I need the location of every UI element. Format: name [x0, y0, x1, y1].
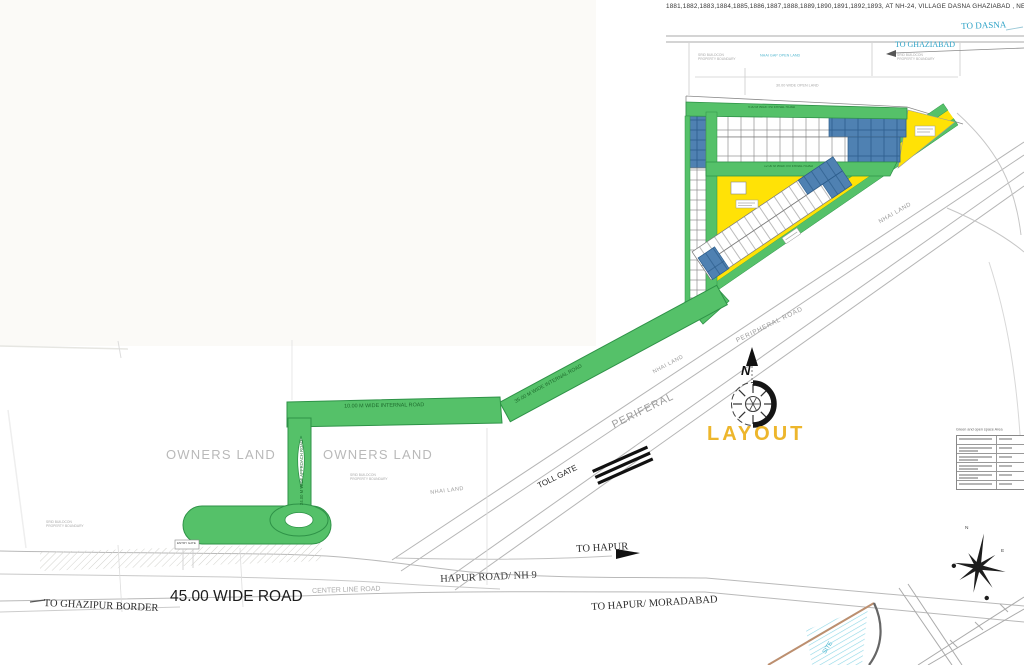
top-internal-road: [686, 102, 907, 119]
table-row: [957, 453, 1024, 462]
drawing-title: 1881,1882,1883,1884,1885,1886,1887,1888,…: [666, 3, 1024, 10]
internal-road-9-label: 9.00 M WIDE INTERNAL ROAD: [748, 106, 795, 109]
table-row: [957, 480, 1024, 489]
owners-land-label-2: OWNERS LAND: [323, 447, 433, 462]
wide-road-45-label: 45.00 WIDE ROAD: [170, 588, 303, 606]
star-compass: [947, 529, 1012, 603]
open-land-30-label: 30.00 WIDE OPEN LAND: [776, 84, 819, 88]
table-row: [957, 436, 1024, 444]
site-plan-canvas: [0, 0, 1024, 665]
owners-land-label-1: OWNERS LAND: [166, 447, 276, 462]
north-label: N: [741, 363, 750, 378]
table-row: [957, 471, 1024, 480]
area-statement-title: Green and open space Area: [956, 428, 999, 432]
to-dasna-label: TO DASNA: [961, 19, 1006, 31]
entry-gate-label: ENTRY GATE: [177, 542, 196, 545]
table-row: [957, 444, 1024, 453]
table-row: [957, 462, 1024, 471]
compass-rose: [732, 383, 775, 426]
star-compass-east-label: E: [1001, 549, 1004, 554]
layout-stamp: LAYOUT: [707, 423, 805, 446]
internal-road-12-label: 12.00 M WIDE INTERNAL ROAD: [764, 165, 813, 168]
internal-road-10: [287, 397, 502, 427]
toll-gate-bars: [592, 446, 653, 485]
star-compass-north-label: N: [965, 526, 968, 531]
property-boundary-note-top-left: SRID BUILDCONPROPERTY BOUNDARY: [698, 53, 736, 62]
approach-road-24-label: 24.00 M WIDE APPROACH ROAD: [300, 440, 304, 505]
to-ghaziabad-label: TO GHAZIABAD: [895, 40, 955, 49]
property-boundary-note-left: SRID BUILDCONPROPERTY BOUNDARY: [46, 520, 84, 529]
property-boundary-note-top-right: SRID BUILDCONPROPERTY BOUNDARY: [897, 53, 935, 62]
site-plan-page: 1881,1882,1883,1884,1885,1886,1887,1888,…: [0, 0, 1024, 665]
area-statement-table: Green and open space Area: [956, 428, 1024, 490]
property-boundary-note-mid: SRID BUILDCONPROPERTY BOUNDARY: [350, 473, 388, 482]
nhai-gap-open-land-label: NHAI GAP OPEN LAND: [760, 54, 800, 58]
